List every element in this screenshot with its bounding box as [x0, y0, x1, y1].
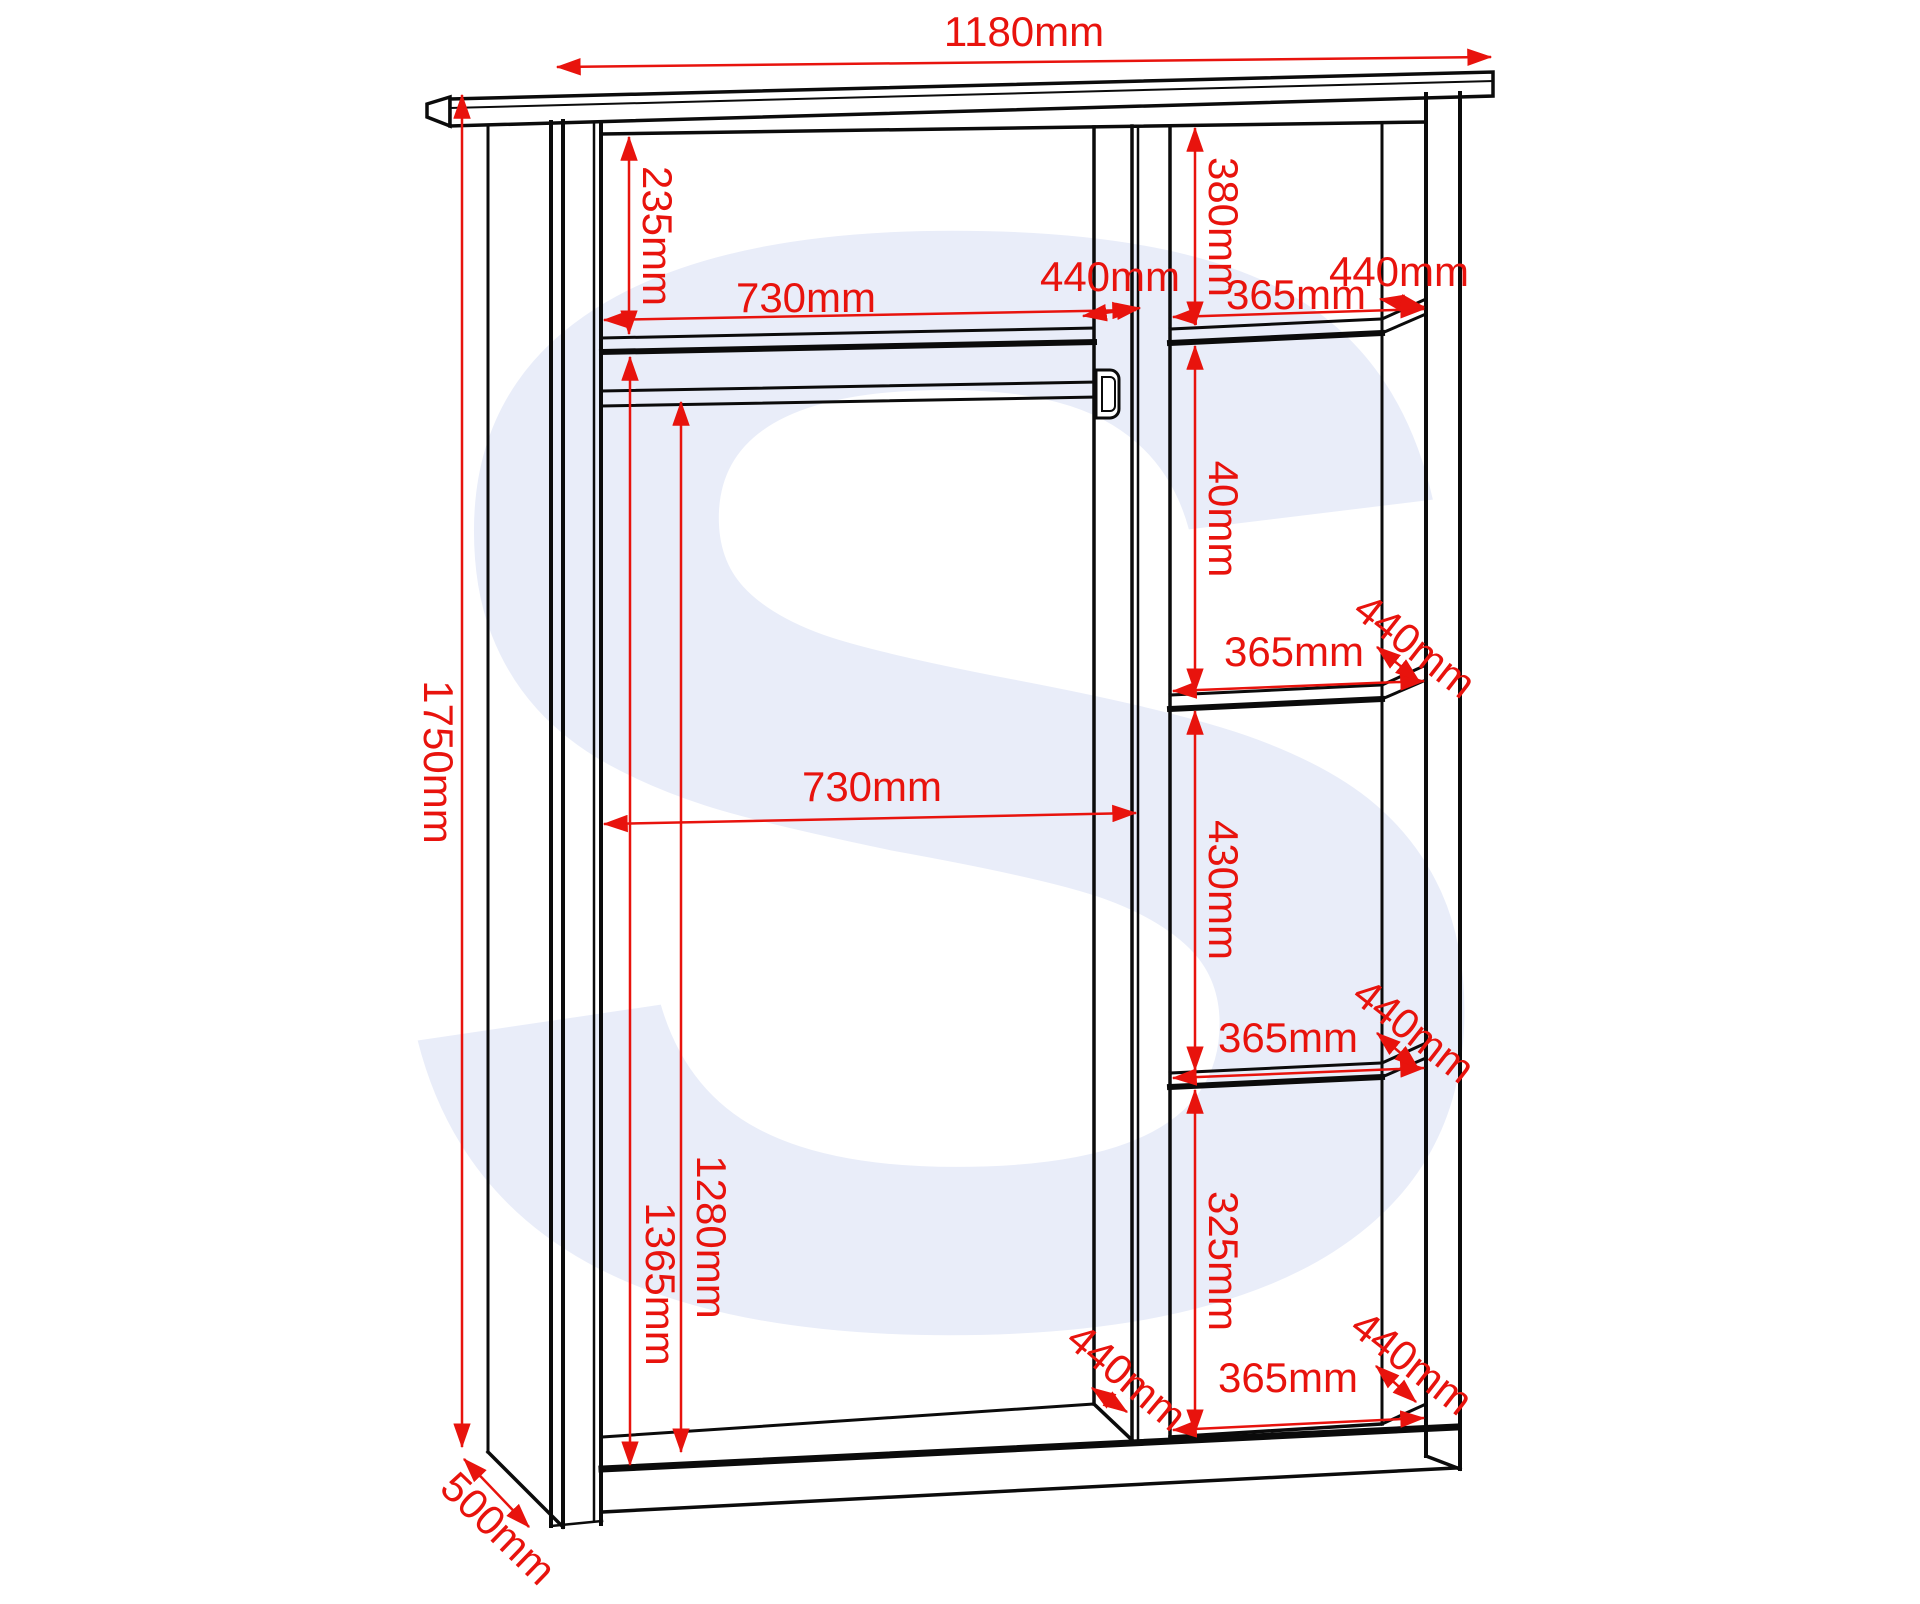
dim-left-top-clearance-label: 235mm: [634, 166, 681, 306]
dim-right-s4-width-label: 365mm: [1218, 1354, 1358, 1401]
dim-overall-height-label: 1750mm: [415, 680, 462, 843]
dim-right-s4-height-label: 325mm: [1200, 1191, 1247, 1331]
dim-right-s1-depth-label: 440mm: [1329, 248, 1469, 295]
dim-left-interior-width-label: 730mm: [802, 763, 942, 810]
dim-left-rail-height-label: 1280mm: [688, 1155, 735, 1318]
dim-right-s3-width-label: 365mm: [1218, 1014, 1358, 1061]
dim-overall-width-label: 1180mm: [944, 8, 1104, 55]
wardrobe-dimension-diagram: S: [0, 0, 1920, 1604]
dim-right-s3-height-label: 430mm: [1200, 820, 1247, 960]
dim-divider-depth-label: 440mm: [1040, 253, 1180, 300]
dim-right-s2-height-label: 40mm: [1200, 461, 1247, 578]
dim-left-top-shelf-width-label: 730mm: [736, 274, 876, 321]
dim-left-shelf-height-label: 1365mm: [637, 1202, 684, 1365]
dim-right-s2-width-label: 365mm: [1224, 628, 1364, 675]
